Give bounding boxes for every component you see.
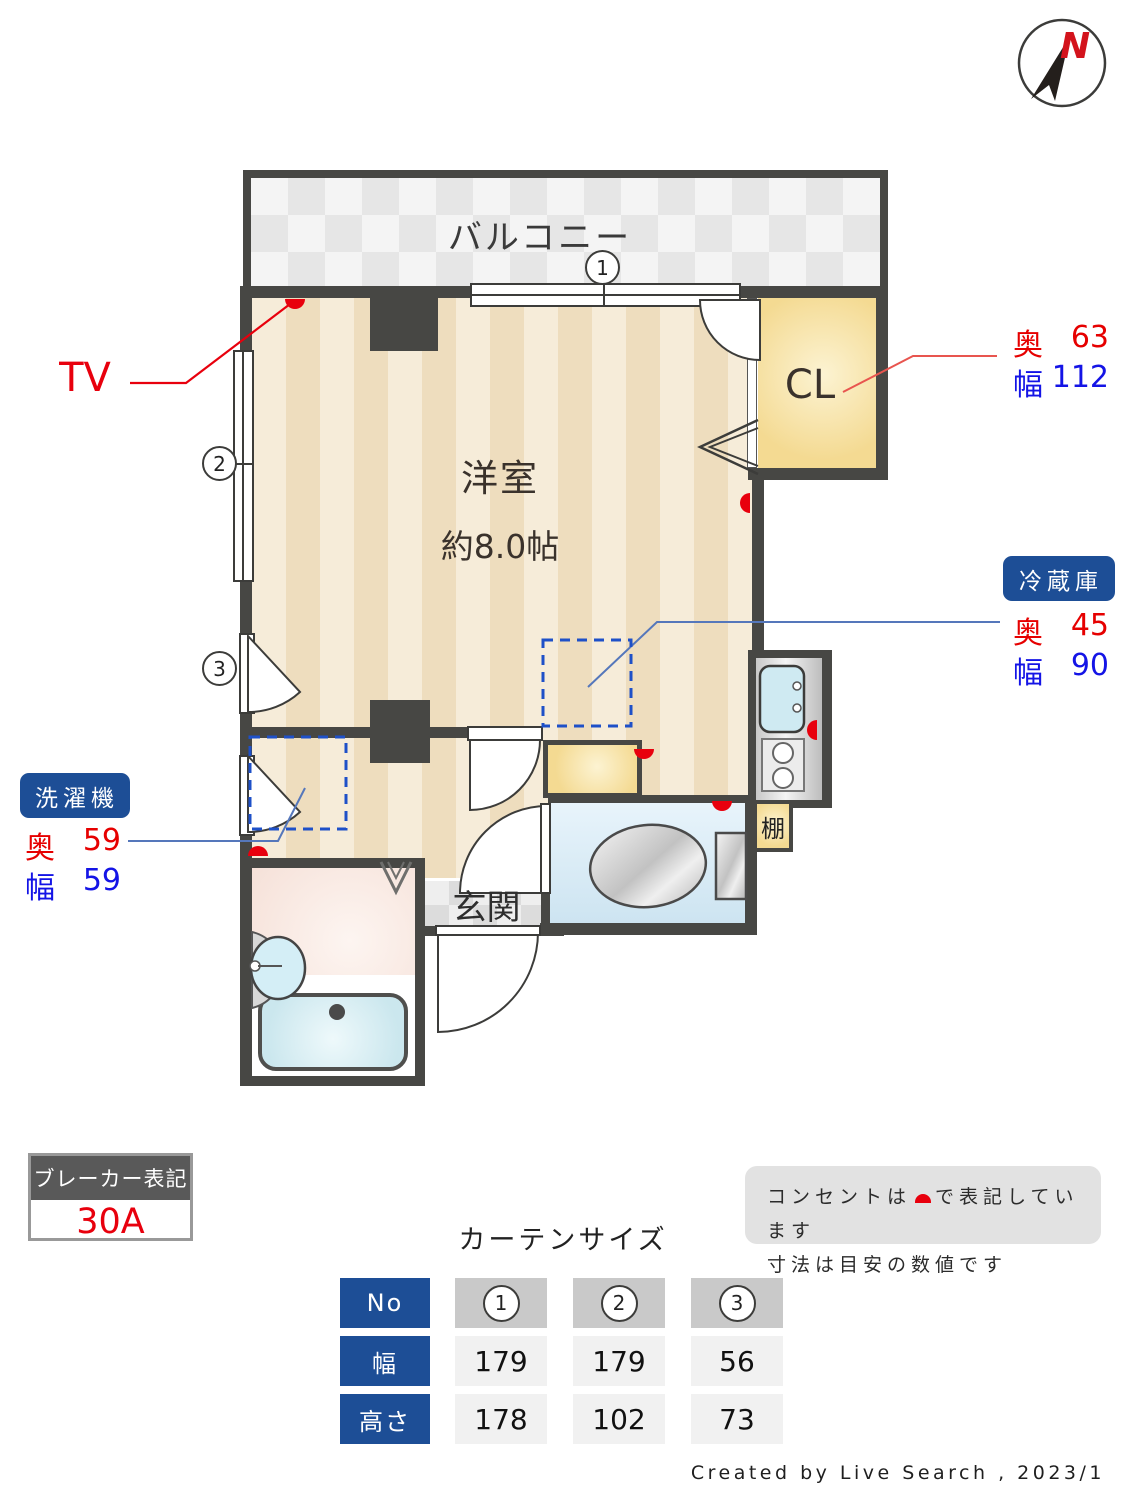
outlet-washer xyxy=(248,846,268,856)
washer-depth-label: 奥 xyxy=(25,823,55,867)
toilet-tank xyxy=(716,833,746,899)
toilet-bowl xyxy=(586,819,710,913)
outlet-tv xyxy=(285,299,305,309)
closet-width-label: 幅 xyxy=(1013,360,1043,404)
kitchen-faucet-2 xyxy=(793,704,801,712)
washroom-window-swing xyxy=(248,756,300,832)
washer-badge: 洗濯機 xyxy=(20,773,130,818)
washer-width-label: 幅 xyxy=(25,863,55,907)
closet-folding-door-inner xyxy=(710,428,758,466)
room-size-label: 約8.0帖 xyxy=(400,520,600,568)
floorplan-page: 棚 xyxy=(0,0,1125,1500)
washer-depth: 奥 59 xyxy=(25,823,121,867)
tub-drain xyxy=(329,1004,345,1020)
fridge-width-value: 90 xyxy=(1071,648,1109,692)
washer-width-value: 59 xyxy=(83,863,121,907)
fridge-depth-value: 45 xyxy=(1071,608,1109,652)
closet-top-door-swing xyxy=(700,300,760,360)
compass-n-label: N xyxy=(1060,26,1090,67)
fridge-footprint xyxy=(543,640,631,726)
outlet-hall xyxy=(634,749,654,759)
closet-depth-label: 奥 xyxy=(1013,320,1043,364)
tv-leader-line xyxy=(130,301,294,383)
closet-width-value: 112 xyxy=(1052,360,1109,404)
entrance-label: 玄関 xyxy=(425,880,548,929)
hall-door-swing xyxy=(470,740,540,810)
washer-depth-value: 59 xyxy=(83,823,121,867)
fridge-depth: 奥 45 xyxy=(1013,608,1109,652)
outlet-toilet xyxy=(712,801,732,811)
window-1-tag: 1 xyxy=(585,250,620,285)
burner-1 xyxy=(773,743,793,763)
plan-overlay: N xyxy=(0,0,1125,1500)
closet-depth-value: 63 xyxy=(1071,320,1109,364)
outlet-kitchen xyxy=(807,720,817,740)
fridge-depth-label: 奥 xyxy=(1013,608,1043,652)
tv-label: TV xyxy=(40,355,130,401)
window-2-tag: 2 xyxy=(202,446,237,481)
closet-depth: 奥 63 xyxy=(1013,320,1109,364)
fridge-width-label: 幅 xyxy=(1013,648,1043,692)
fridge-badge: 冷蔵庫 xyxy=(1003,556,1115,601)
kitchen-faucet-1 xyxy=(793,682,801,690)
closet-width: 幅 112 xyxy=(1013,360,1109,404)
burner-2 xyxy=(773,768,793,788)
closet-label: CL xyxy=(770,362,850,408)
bath-door-mark-inner xyxy=(388,862,404,878)
kitchen-sink xyxy=(760,666,804,732)
entrance-door-swing xyxy=(438,932,538,1032)
closet-leader-line xyxy=(843,356,997,392)
window3-swing xyxy=(248,636,300,712)
room-name-label: 洋室 xyxy=(400,448,600,502)
window-3-tag: 3 xyxy=(202,651,237,686)
hall-door-panel xyxy=(468,727,542,740)
fridge-width: 幅 90 xyxy=(1013,648,1109,692)
outlet-right-wall xyxy=(740,493,750,513)
washer-width: 幅 59 xyxy=(25,863,121,907)
